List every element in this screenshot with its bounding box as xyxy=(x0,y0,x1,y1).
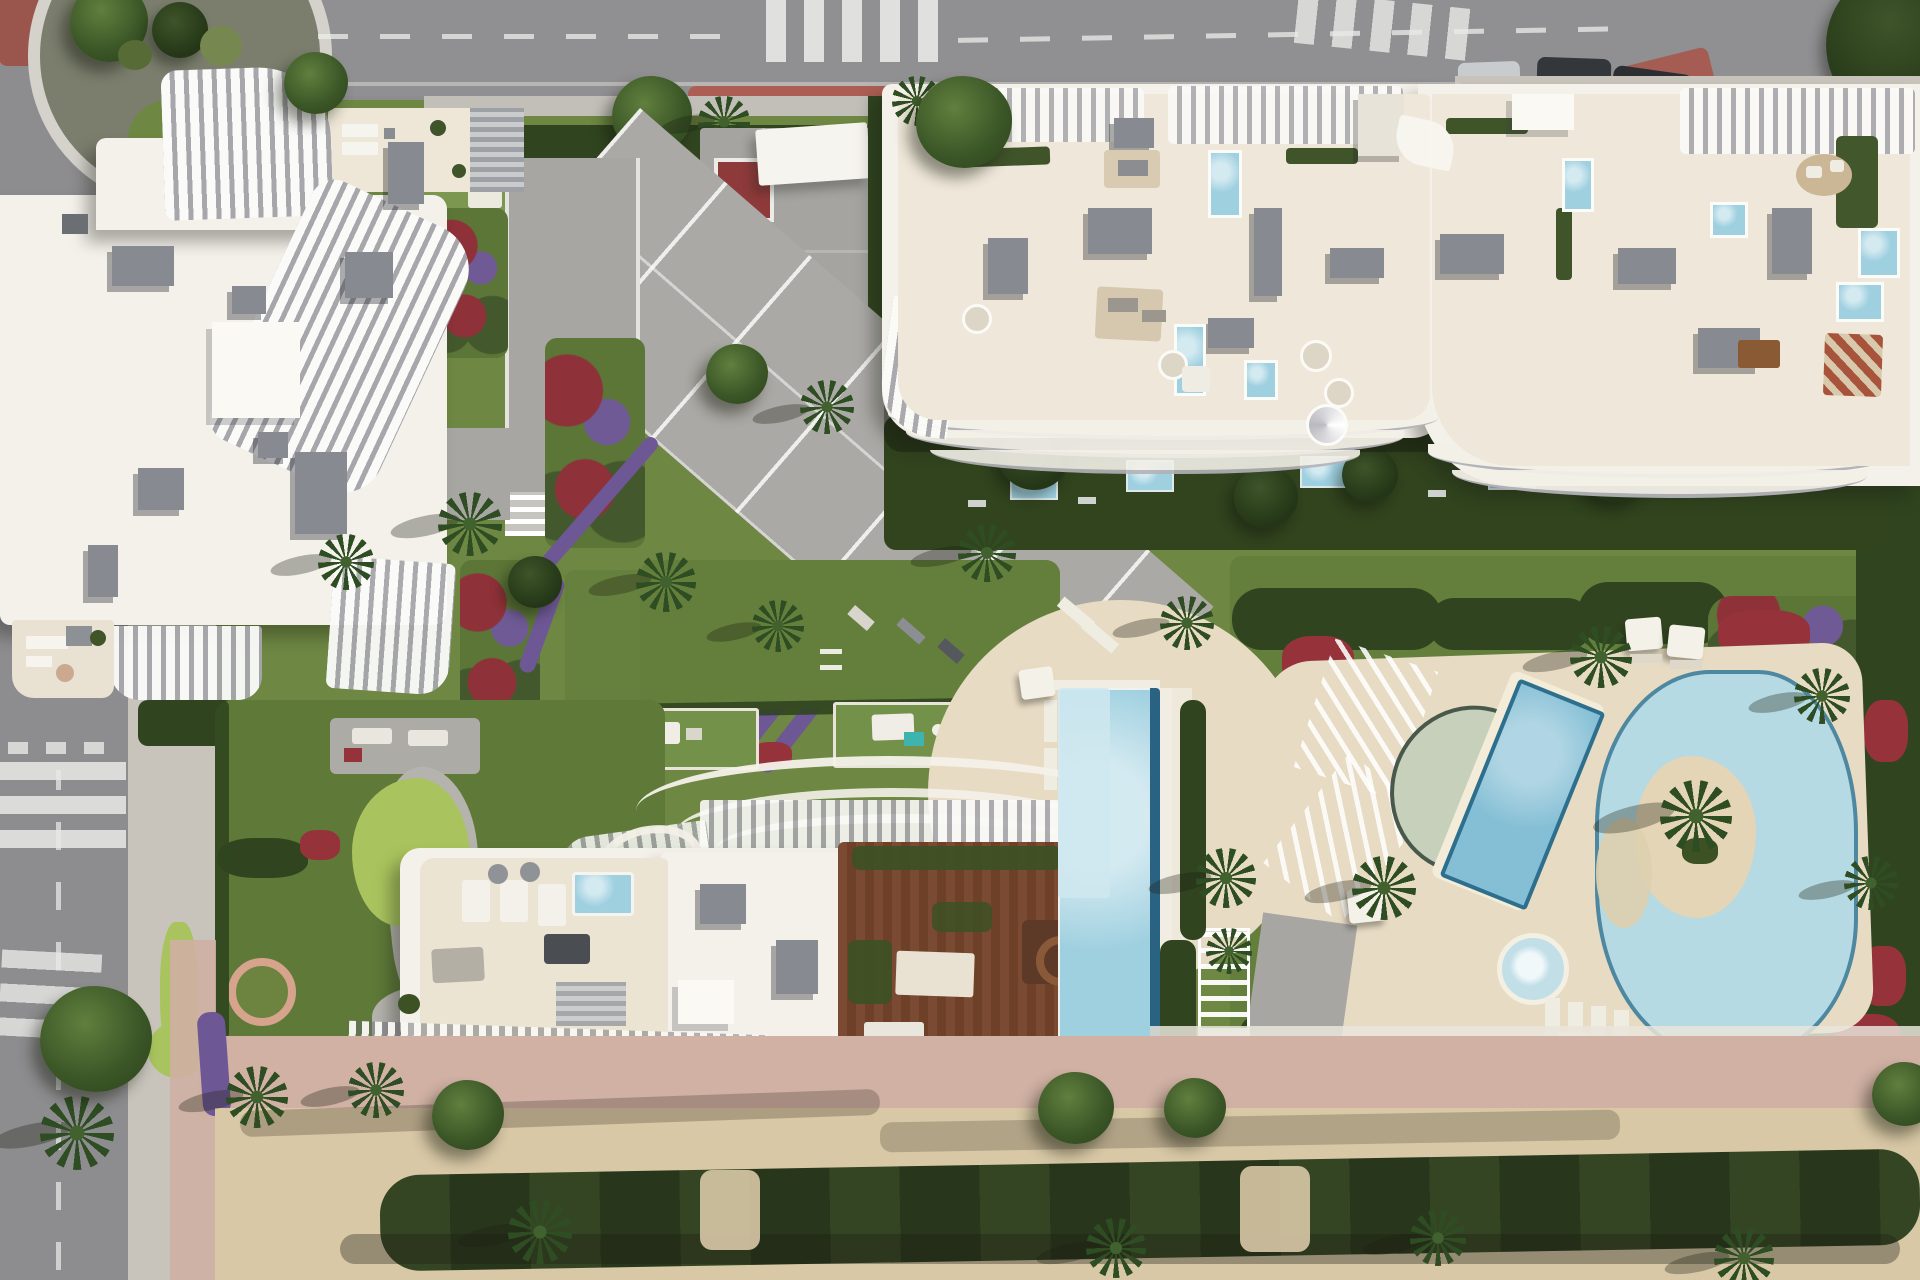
deck-planter xyxy=(852,846,1062,870)
parasol xyxy=(1625,616,1664,651)
b-roofbox xyxy=(1088,208,1152,254)
a-fin-sw xyxy=(110,626,262,700)
a-penthouse xyxy=(212,322,300,418)
gym-ladder xyxy=(820,640,842,670)
promenade-hedge-gap-2 xyxy=(1240,1166,1310,1252)
a-roofbox-2 xyxy=(345,252,393,298)
c-sofa xyxy=(431,947,485,984)
b-plunge-pool-5 xyxy=(1858,228,1900,278)
b-chair-2 xyxy=(1830,160,1844,172)
pink-planter-ring xyxy=(228,958,296,1026)
tree-6 xyxy=(1164,1078,1226,1138)
tree-4 xyxy=(432,1080,504,1150)
a-sw-sofa xyxy=(26,636,68,649)
a-roofbox-6 xyxy=(232,286,266,314)
b-roofbox-4 xyxy=(1440,234,1504,274)
b-roofbox-6 xyxy=(1772,208,1812,274)
b-roofbox-3 xyxy=(1330,248,1384,278)
c-lounger-2 xyxy=(500,880,528,922)
palm-4 xyxy=(752,600,804,652)
c-dining-set xyxy=(544,934,590,964)
palm-11 xyxy=(1844,856,1898,910)
boundary-wall-south xyxy=(1150,1026,1920,1036)
b-hanging-chair-4 xyxy=(962,304,992,334)
b-roofbox-5 xyxy=(1618,248,1676,284)
b-terrace-table xyxy=(1118,160,1148,176)
c-parasol-top xyxy=(488,864,508,884)
parasol-2 xyxy=(1666,624,1705,660)
minigolf-bench xyxy=(352,728,392,744)
roof-garden-table xyxy=(686,728,702,740)
b-roofbox-11 xyxy=(1208,318,1254,348)
a-side-table xyxy=(384,128,395,139)
a-roofbox-8 xyxy=(258,432,288,458)
b-garden-lounger-2 xyxy=(1078,497,1096,504)
a-sw-box xyxy=(66,626,92,646)
a-sw-pot xyxy=(56,664,74,682)
a-roofbox-5 xyxy=(388,142,424,204)
b-plunge-pool xyxy=(1208,150,1242,218)
b-balustrade-3 xyxy=(1680,88,1915,154)
entrance-canopy xyxy=(755,122,871,186)
b-planter-2 xyxy=(1286,148,1358,164)
b-garden-tree-2 xyxy=(1234,466,1298,528)
a-roofbox-3 xyxy=(295,452,347,534)
tree-2 xyxy=(916,76,1012,168)
b-spiral-stair xyxy=(1306,404,1348,446)
b-dining-table xyxy=(1738,340,1780,368)
crosswalk-left xyxy=(0,762,126,848)
palm-13 xyxy=(348,1062,404,1118)
palm-17 xyxy=(1410,1210,1466,1266)
b-round-rug xyxy=(1796,154,1852,196)
lagoon-beach xyxy=(1596,818,1652,928)
c-lounger-3 xyxy=(538,884,566,926)
b-plunge-pool-7 xyxy=(1562,158,1594,212)
c-plunge-pool xyxy=(572,872,634,916)
minigolf-bench-2 xyxy=(408,730,448,746)
b-roofbox-7 xyxy=(1114,118,1154,148)
b-roofbox-8 xyxy=(1512,94,1574,130)
palm-18 xyxy=(1714,1228,1774,1280)
roundabout-plant-2 xyxy=(118,40,152,70)
c-roofbox-2 xyxy=(776,940,818,994)
b-garden-lounger-4 xyxy=(1428,490,1446,497)
b-terrace-sofa-2 xyxy=(1142,310,1166,322)
crosswalk-top xyxy=(766,0,946,62)
a-vent xyxy=(62,214,88,234)
palm-16 xyxy=(1086,1218,1146,1278)
c-pergola-slats xyxy=(556,982,626,1026)
deck-rug xyxy=(895,951,974,998)
c-pot-plant xyxy=(398,994,420,1014)
minigolf-border-hedge xyxy=(215,700,229,1040)
promenade-hedge-gap xyxy=(700,1170,760,1250)
lounger-row-2 xyxy=(1670,660,1702,669)
b-patterned-rug xyxy=(1823,333,1883,397)
palm-15 xyxy=(508,1200,572,1264)
palm-9 xyxy=(1570,626,1632,688)
a-roofbox-7 xyxy=(88,545,118,597)
b-planter-4 xyxy=(1556,208,1572,280)
b-plunge-pool-4 xyxy=(1710,202,1748,238)
aerial-render-stage xyxy=(0,0,1920,1280)
parasol-plaza xyxy=(1018,666,1056,700)
garden-topleft-bench xyxy=(468,190,502,208)
a-plant-2 xyxy=(452,164,466,178)
tree xyxy=(284,52,348,114)
c-lounger xyxy=(462,880,490,922)
palm-20 xyxy=(800,380,854,434)
palm-6 xyxy=(1160,596,1214,650)
red-bush-east xyxy=(1864,700,1908,762)
giveway-marks-left xyxy=(8,742,118,754)
palm-8 xyxy=(1352,856,1416,920)
tree-8 xyxy=(706,344,768,404)
palm-10 xyxy=(1794,668,1850,724)
palm-21 xyxy=(1206,928,1252,974)
c-pool-shallow xyxy=(1058,688,1110,898)
b-terrace-sofa xyxy=(1108,298,1138,312)
roundabout-plant xyxy=(200,26,242,66)
c-roofbox-3 xyxy=(678,980,734,1024)
b-plunge-pool-6 xyxy=(1836,282,1884,322)
b-roofbox-12 xyxy=(988,238,1028,294)
b-parasol xyxy=(1182,366,1210,392)
pool-hedge-north-2 xyxy=(1428,598,1593,650)
minigolf-planter xyxy=(344,748,362,762)
b-roofbox-2 xyxy=(1254,208,1282,296)
palm-2 xyxy=(318,534,374,590)
palm-12 xyxy=(226,1066,288,1128)
deck-planter-2 xyxy=(848,940,892,1004)
minigolf-court xyxy=(330,718,480,774)
lounger-plaza-3 xyxy=(1044,700,1057,742)
palm-5 xyxy=(958,524,1016,582)
a-roofbox xyxy=(112,246,174,286)
b-plunge-pool-3 xyxy=(1244,360,1278,400)
roof-garden-2-spa xyxy=(904,732,924,746)
a-pergola-ne xyxy=(470,108,524,192)
a-sw-shrub xyxy=(90,630,106,646)
tree-5 xyxy=(1038,1072,1114,1144)
palm-3 xyxy=(636,552,696,612)
a-lounger-2 xyxy=(342,142,378,155)
palm xyxy=(438,492,502,556)
a-sw-sofa-2 xyxy=(26,656,52,667)
tree-9 xyxy=(508,556,562,608)
palm-7 xyxy=(1196,848,1256,908)
b-chair xyxy=(1806,166,1822,178)
deck-planter-3 xyxy=(932,902,992,932)
c-parasol-top-2 xyxy=(520,862,540,882)
a-roofbox-4 xyxy=(138,468,184,510)
b-hanging-chair-2 xyxy=(1300,340,1332,372)
minigolf-hedge xyxy=(218,838,308,878)
road-centerline xyxy=(318,34,748,39)
tree-3 xyxy=(40,986,152,1092)
c-hedge-east xyxy=(1180,700,1206,940)
jacuzzi xyxy=(1497,933,1569,1005)
a-lounger xyxy=(342,124,378,137)
c-roofbox xyxy=(700,884,746,924)
minigolf-red-bush xyxy=(300,830,340,860)
a-plant xyxy=(430,120,446,136)
b-garden-lounger xyxy=(968,500,986,507)
lounger-row xyxy=(1630,654,1662,663)
island-palm xyxy=(1660,780,1732,852)
palm-14 xyxy=(40,1096,114,1170)
